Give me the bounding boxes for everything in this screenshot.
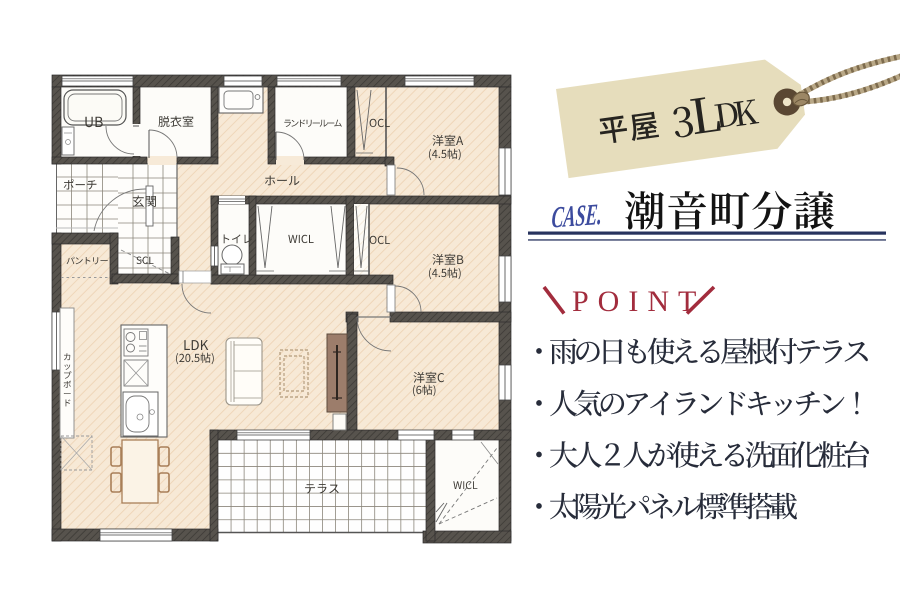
svg-text:CASE.: CASE. (550, 199, 603, 235)
svg-text:POINT: POINT (572, 285, 705, 318)
